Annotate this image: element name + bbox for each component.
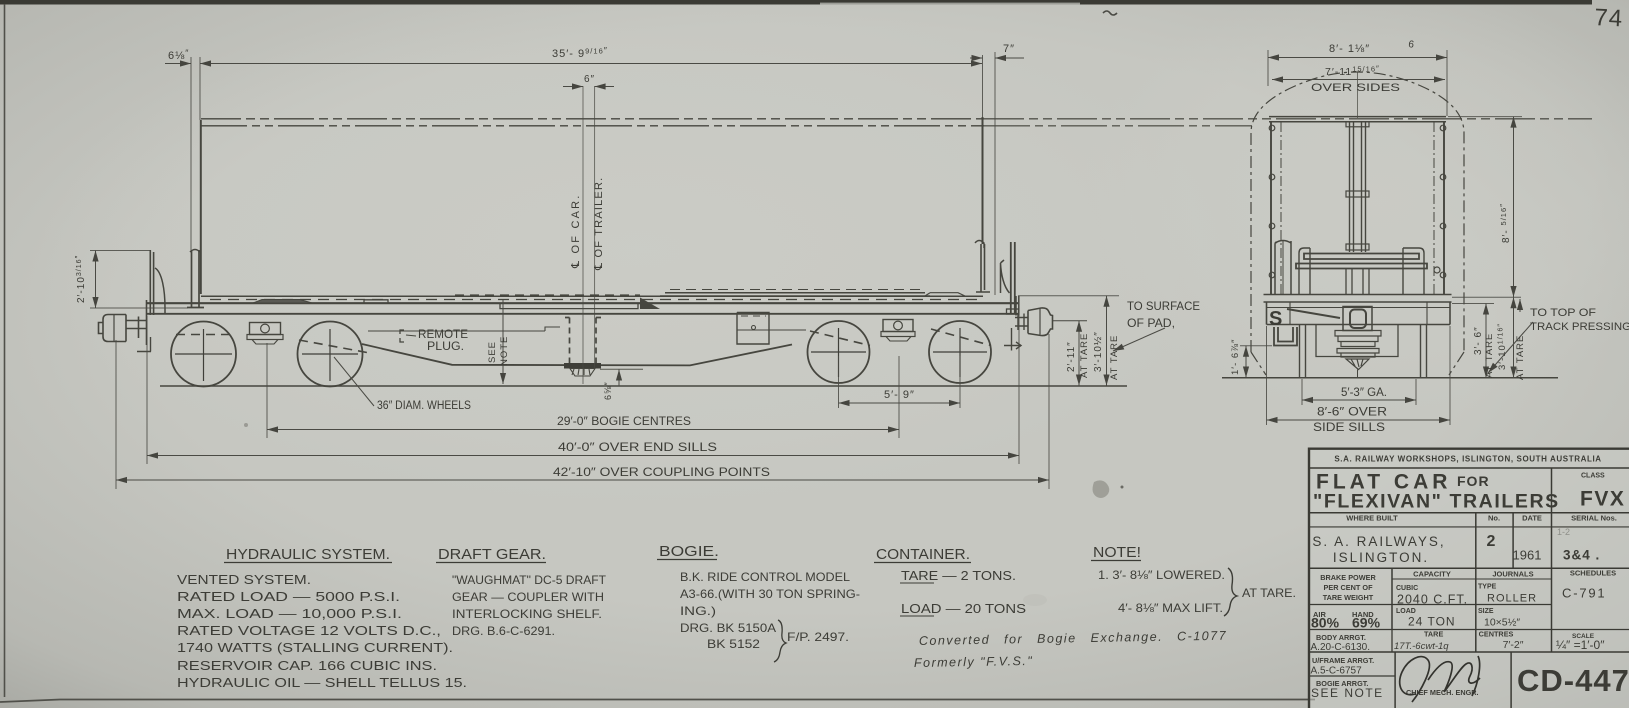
svg-text:TO SURFACE: TO SURFACE (1127, 301, 1200, 313)
svg-text:"WAUGHMAT" DC-5 DRAFT: "WAUGHMAT" DC-5 DRAFT (452, 573, 607, 587)
svg-text:PER CENT OF: PER CENT OF (1323, 583, 1373, 592)
svg-text:AT TARE: AT TARE (1079, 333, 1090, 378)
svg-text:"FLEXIVAN" TRAILERS: "FLEXIVAN" TRAILERS (1313, 491, 1560, 513)
svg-text:WHERE BUILT: WHERE BUILT (1346, 514, 1398, 523)
svg-text:BOGIE.: BOGIE. (659, 544, 719, 560)
svg-text:5′- 9″: 5′- 9″ (884, 389, 915, 401)
svg-text:SEE: SEE (487, 341, 498, 363)
svg-text:BK 5152: BK 5152 (707, 637, 760, 651)
svg-text:LOAD — 20 TONS: LOAD — 20 TONS (901, 602, 1026, 616)
svg-text:80%: 80% (1311, 615, 1340, 631)
svg-text:NOTE!: NOTE! (1093, 545, 1141, 561)
svg-text:RATED VOLTAGE 12 VOLTS D.C.: RATED VOLTAGE 12 VOLTS D.C., (177, 624, 441, 638)
svg-text:1. 3′- 8⅛″ LOWERED.: 1. 3′- 8⅛″ LOWERED. (1098, 568, 1225, 582)
svg-text:TYPE: TYPE (1478, 584, 1497, 591)
svg-text:ING.): ING.) (680, 604, 716, 618)
svg-text:DRG. B.6-C-6291.: DRG. B.6-C-6291. (452, 624, 555, 638)
svg-text:CLASS: CLASS (1581, 473, 1605, 480)
svg-text:10×5½″: 10×5½″ (1484, 617, 1520, 629)
svg-text:CD-447: CD-447 (1517, 663, 1629, 698)
svg-text:HYDRAULIC OIL — SHELL TELL: HYDRAULIC OIL — SHELL TELLUS 15. (177, 676, 467, 690)
svg-text:42′-10″ OVER COUPLING POINTS: 42′-10″ OVER COUPLING POINTS (553, 465, 770, 479)
svg-text:3′-10½″: 3′-10½″ (1093, 331, 1104, 372)
svg-text:17T.-6cwt-1q: 17T.-6cwt-1q (1394, 641, 1449, 652)
svg-text:FVX: FVX (1580, 488, 1625, 511)
svg-text:SIZE: SIZE (1478, 608, 1494, 615)
svg-text:SEE NOTE: SEE NOTE (1311, 686, 1384, 700)
svg-text:DRAFT GEAR.: DRAFT GEAR. (438, 547, 546, 563)
svg-text:1961: 1961 (1513, 548, 1542, 563)
svg-text:2′-11″: 2′-11″ (1066, 341, 1077, 372)
svg-text:TRACK PRESSING: TRACK PRESSING (1530, 321, 1629, 333)
svg-text:7″: 7″ (1003, 43, 1015, 55)
svg-text:A.20-C-6130.: A.20-C-6130. (1311, 642, 1370, 653)
svg-text:2040 C.FT.: 2040 C.FT. (1397, 593, 1468, 607)
svg-text:TARE WEIGHT: TARE WEIGHT (1323, 593, 1374, 602)
svg-text:24 TON: 24 TON (1408, 615, 1456, 629)
svg-text:CONTAINER.: CONTAINER. (876, 547, 970, 563)
svg-text:MAX. LOAD — 10,000 P.S.I.: MAX. LOAD — 10,000 P.S.I. (177, 607, 402, 621)
svg-text:PLUG.: PLUG. (427, 341, 464, 353)
svg-text:NOTE: NOTE (499, 336, 510, 366)
svg-text:S.A. RAILWAY WORKSHOPS, ISLING: S.A. RAILWAY WORKSHOPS, ISLINGTON, SOUTH… (1334, 455, 1601, 464)
svg-text:6″: 6″ (584, 74, 595, 85)
svg-text:OF PAD,: OF PAD, (1127, 318, 1175, 330)
svg-text:HYDRAULIC SYSTEM.: HYDRAULIC SYSTEM. (226, 547, 390, 563)
svg-text:C-791: C-791 (1562, 586, 1606, 601)
svg-text:SCHEDULES: SCHEDULES (1570, 569, 1616, 578)
svg-text:6⅝″: 6⅝″ (603, 381, 613, 400)
svg-text:REMOTE: REMOTE (418, 329, 468, 341)
svg-text:8′-6″ OVER: 8′-6″ OVER (1317, 405, 1387, 419)
svg-text:40′-0″ OVER END SILLS: 40′-0″ OVER END SILLS (558, 440, 717, 454)
svg-text:U/FRAME ARRGT.: U/FRAME ARRGT. (1312, 656, 1374, 665)
svg-text:GEAR — COUPLER WITH: GEAR — COUPLER WITH (452, 590, 604, 604)
svg-text:S. A. RAILWAYS,: S. A. RAILWAYS, (1312, 534, 1445, 549)
svg-text:AT TARE.: AT TARE. (1242, 586, 1296, 600)
svg-text:VENTED SYSTEM.: VENTED SYSTEM. (177, 573, 311, 587)
svg-text:℄ OF TRAILER.: ℄ OF TRAILER. (593, 177, 605, 271)
svg-text:4′- 8⅛″ MAX LIFT.: 4′- 8⅛″ MAX LIFT. (1118, 601, 1223, 615)
svg-text:A3-66.(WITH 30 TON SPRING-: A3-66.(WITH 30 TON SPRING- (680, 587, 860, 601)
svg-text:TARE: TARE (1424, 630, 1443, 639)
svg-text:RATED LOAD — 5000 P.S.I.: RATED LOAD — 5000 P.S.I. (177, 590, 400, 604)
svg-text:SIDE SILLS: SIDE SILLS (1313, 420, 1385, 434)
svg-text:29′-0″ BOGIE CENTRES: 29′-0″ BOGIE CENTRES (557, 414, 691, 428)
svg-text:AT TARE: AT TARE (1109, 335, 1120, 380)
svg-text:DATE: DATE (1522, 514, 1542, 523)
svg-text:8′- 1⅛″: 8′- 1⅛″ (1329, 43, 1370, 55)
svg-text:RESERVOIR CAP. 166 CUBIC I: RESERVOIR CAP. 166 CUBIC INS. (177, 659, 437, 673)
svg-text:SERIAL Nos.: SERIAL Nos. (1571, 514, 1617, 523)
svg-text:1-2: 1-2 (1557, 527, 1570, 537)
svg-text:S: S (1269, 308, 1282, 330)
svg-text:A.5-C-6757: A.5-C-6757 (1311, 666, 1363, 677)
svg-text:2: 2 (1487, 533, 1496, 550)
svg-text:JOURNALS: JOURNALS (1492, 570, 1533, 579)
svg-text:℄ OF CAR.: ℄ OF CAR. (570, 193, 582, 269)
svg-text:¼″ =1′-0″: ¼″ =1′-0″ (1556, 638, 1605, 652)
svg-text:1′- 6⅞″: 1′- 6⅞″ (1230, 339, 1241, 375)
svg-text:CAPACITY: CAPACITY (1413, 570, 1451, 579)
svg-text:AT TARE: AT TARE (1515, 335, 1526, 380)
svg-text:FOR: FOR (1457, 473, 1490, 489)
svg-text:74: 74 (1594, 4, 1624, 32)
svg-text:3&4 .: 3&4 . (1563, 548, 1600, 563)
svg-text:1740 WATTS (STALLING CURREN: 1740 WATTS (STALLING CURRENT). (177, 641, 453, 655)
svg-text:F/P. 2497.: F/P. 2497. (787, 630, 849, 644)
svg-text:CUBIC: CUBIC (1396, 585, 1418, 592)
svg-text:OVER SIDES: OVER SIDES (1311, 82, 1400, 94)
svg-text:TARE — 2 TONS.: TARE — 2 TONS. (901, 569, 1016, 583)
svg-text:CENTRES: CENTRES (1479, 630, 1514, 639)
svg-text:Formerly "F.V.S.": Formerly "F.V.S." (914, 654, 1034, 670)
svg-text:No.: No. (1488, 514, 1500, 523)
svg-text:AT TARE: AT TARE (1484, 333, 1495, 378)
svg-text:TO TOP OF: TO TOP OF (1530, 307, 1596, 319)
svg-text:36″ DIAM. WHEELS: 36″ DIAM. WHEELS (377, 400, 471, 412)
svg-text:BRAKE POWER: BRAKE POWER (1320, 573, 1376, 582)
svg-text:5′-3″ GA.: 5′-3″ GA. (1341, 387, 1387, 399)
svg-text:3′- 6″: 3′- 6″ (1473, 326, 1484, 355)
svg-text:DRG. BK 5150A: DRG. BK 5150A (680, 621, 776, 635)
svg-text:69%: 69% (1352, 615, 1381, 631)
svg-text:INTERLOCKING SHELF.: INTERLOCKING SHELF. (452, 607, 602, 621)
svg-text:7′-2″: 7′-2″ (1503, 639, 1524, 651)
svg-text:ISLINGTON.: ISLINGTON. (1333, 550, 1429, 565)
svg-text:BODY ARRGT.: BODY ARRGT. (1316, 633, 1366, 642)
svg-text:B.K. RIDE CONTROL MODEL: B.K. RIDE CONTROL MODEL (680, 570, 850, 584)
svg-text:ROLLER: ROLLER (1487, 593, 1537, 605)
